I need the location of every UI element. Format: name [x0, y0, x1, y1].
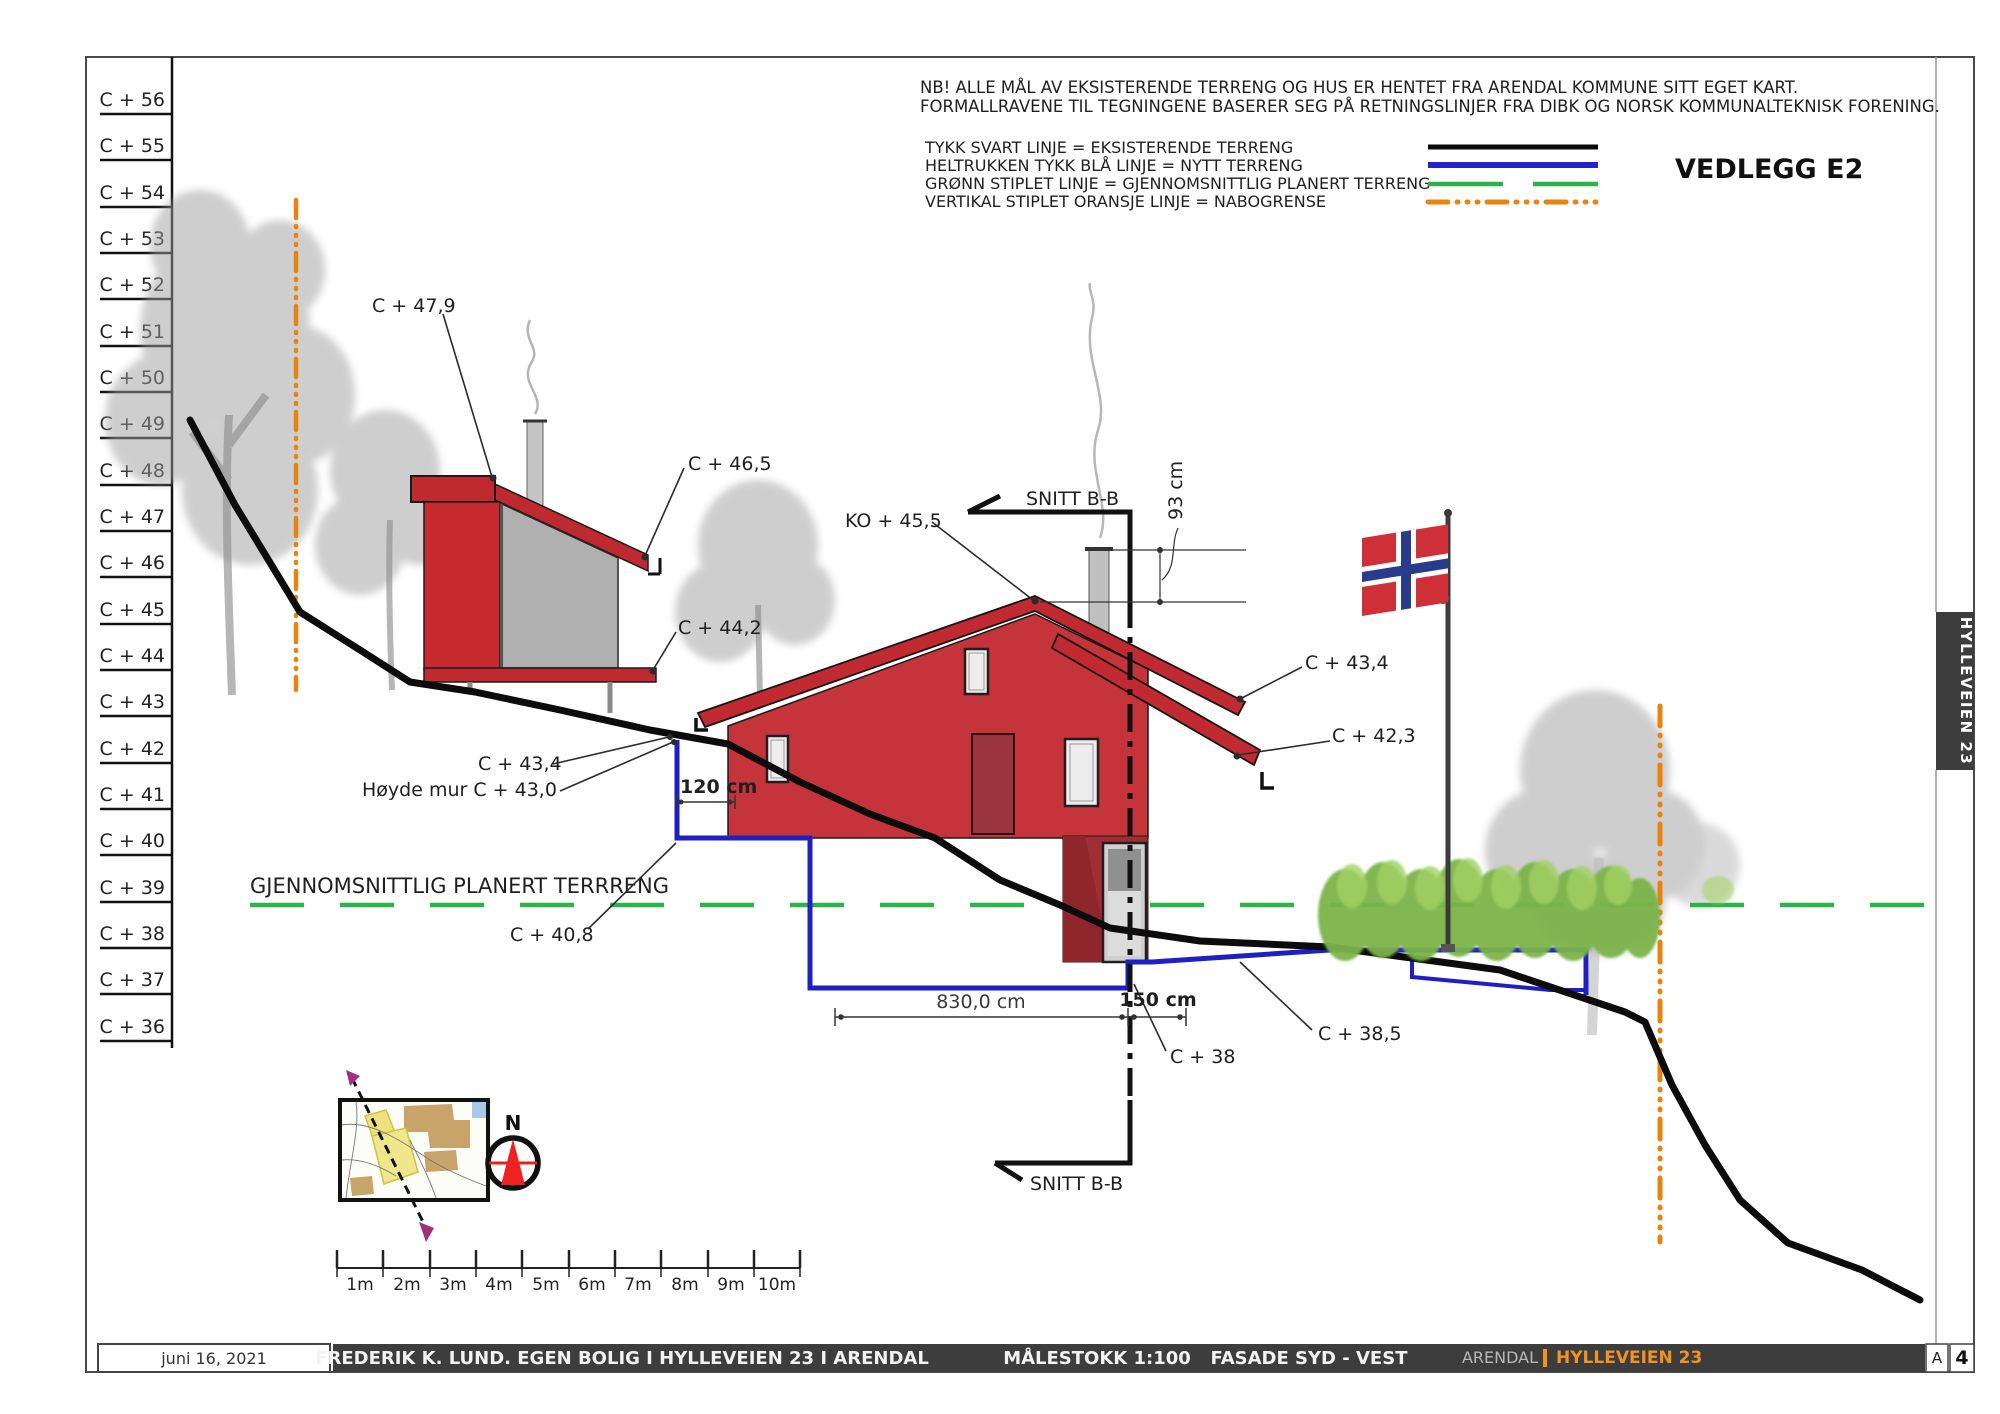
annex-base — [424, 668, 656, 682]
scale-label: C + 54 — [100, 182, 165, 204]
sheet-number-label: 4 — [1955, 1347, 1968, 1369]
scale-label: C + 42 — [100, 738, 165, 760]
facade-drawing: C + 56 C + 55 C + 54 C + 53 C + 52 C + 5… — [0, 0, 2000, 1414]
note-line-2: FORMALLRAVENE TIL TEGNINGENE BASERER SEG… — [920, 97, 1940, 116]
scale-label: C + 45 — [100, 599, 165, 621]
scale-label: C + 44 — [100, 645, 165, 667]
foundation-width-label: 830,0 cm — [936, 991, 1025, 1013]
eave-lower-right-label: C + 42,3 — [1332, 725, 1416, 747]
revision-label: A — [1932, 1349, 1943, 1367]
level-38-5-label: C + 38,5 — [1318, 1023, 1402, 1045]
level-38-label: C + 38 — [1170, 1046, 1235, 1068]
scalebar-label: 1m — [346, 1275, 373, 1295]
scale-label: C + 38 — [100, 923, 165, 945]
street-divider — [1543, 1349, 1547, 1367]
title-block: juni 16, 2021 FREDERIK K. LUND. EGEN BOL… — [98, 1344, 1974, 1372]
side-tab-label: HYLLEVEIEN 23 — [1957, 617, 1975, 766]
date-label: juni 16, 2021 — [160, 1349, 267, 1368]
scale-label: C + 37 — [100, 969, 165, 991]
eave-left-label: C + 43,4 — [478, 753, 562, 775]
annex-roof-eave-label: C + 46,5 — [688, 453, 772, 475]
wall-dim-label: 120 cm — [680, 776, 757, 798]
legend-black-label: TYKK SVART LINJE = EKSISTERENDE TERRENG — [924, 138, 1293, 157]
annex-chimney — [527, 420, 543, 506]
annex-base-label: C + 44,2 — [678, 617, 762, 639]
annex-parapet — [411, 476, 495, 502]
scalebar-label: 3m — [439, 1275, 466, 1295]
section-label-top: SNITT B-B — [1026, 488, 1119, 510]
scale-label: C + 47 — [100, 506, 165, 528]
municipality-label: ARENDAL — [1462, 1348, 1538, 1367]
north-label: N — [505, 1111, 522, 1135]
avg-terrain-label: GJENNOMSNITTLIG PLANERT TERRRENG — [250, 874, 669, 898]
scale-label: C + 39 — [100, 877, 165, 899]
scale-label: C + 36 — [100, 1016, 165, 1038]
foundation-offset-label: 150 cm — [1119, 989, 1196, 1011]
note-line-1: NB! ALLE MÅL AV EKSISTERENDE TERRENG OG … — [920, 78, 1798, 97]
scalebar-label: 7m — [624, 1275, 651, 1295]
chimney-height-label: 93 cm — [1165, 461, 1187, 520]
scale-label-title: MÅLESTOKK 1:100 — [1003, 1346, 1191, 1369]
scale-label: C + 40 — [100, 830, 165, 852]
legend-green-label: GRØNN STIPLET LINJE = GJENNOMSNITTLIG PL… — [925, 174, 1430, 193]
eave-upper-right-label: C + 43,4 — [1305, 652, 1389, 674]
scale-label: C + 43 — [100, 691, 165, 713]
notes-block: NB! ALLE MÅL AV EKSISTERENDE TERRENG OG … — [920, 78, 1940, 116]
ridge-label: KO + 45,5 — [845, 510, 942, 532]
house-door — [972, 734, 1014, 834]
scalebar-label: 9m — [717, 1275, 744, 1295]
section-label-bottom: SNITT B-B — [1030, 1173, 1123, 1195]
annex-left-wall — [424, 502, 500, 670]
scalebar-label: 4m — [485, 1275, 512, 1295]
scalebar-label: 10m — [758, 1275, 796, 1295]
legend-blue-label: HELTRUKKEN TYKK BLÅ LINJE = NYTT TERRENG — [925, 156, 1303, 175]
street-label: HYLLEVEIEN 23 — [1556, 1348, 1702, 1368]
side-tab: HYLLEVEIEN 23 — [1936, 612, 1975, 770]
scalebar-label: 6m — [578, 1275, 605, 1295]
scalebar-label: 5m — [532, 1275, 559, 1295]
scalebar-label: 2m — [393, 1275, 420, 1295]
scale-label: C + 46 — [100, 552, 165, 574]
scale-label: C + 55 — [100, 135, 165, 157]
legend-orange-label: VERTIKAL STIPLET ORANSJE LINJE = NABOGRE… — [925, 192, 1326, 211]
scale-label: C + 41 — [100, 784, 165, 806]
view-label: FASADE SYD - VEST — [1211, 1348, 1409, 1369]
drawing-sheet: C + 56 C + 55 C + 54 C + 53 C + 52 C + 5… — [0, 0, 2000, 1414]
attachment-title: VEDLEGG E2 — [1675, 154, 1863, 185]
norwegian-flag — [1362, 524, 1448, 616]
scale-label: C + 56 — [100, 89, 165, 111]
project-label: FREDERIK K. LUND. EGEN BOLIG I HYLLEVEIE… — [315, 1348, 929, 1369]
annex-roof-top-label: C + 47,9 — [372, 295, 456, 317]
scalebar-label: 8m — [671, 1275, 698, 1295]
avg-terrain-level-label: C + 40,8 — [510, 924, 594, 946]
wall-height-label: Høyde mur C + 43,0 — [362, 779, 557, 801]
